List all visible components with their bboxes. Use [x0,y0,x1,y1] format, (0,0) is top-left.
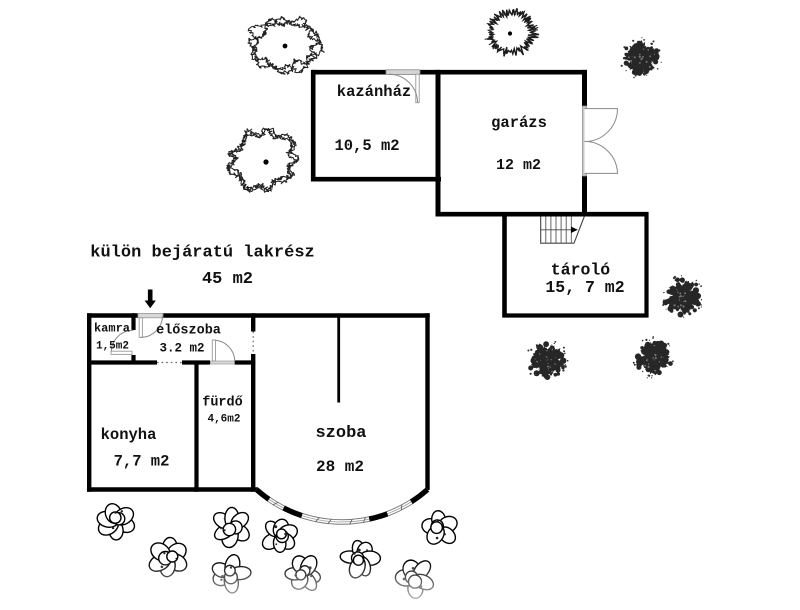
svg-text:3.2 m2: 3.2 m2 [159,341,204,355]
svg-text:konyha: konyha [101,426,157,444]
svg-text:külön bejáratú lakrész: külön bejáratú lakrész [90,243,314,262]
svg-text:kazánház: kazánház [337,83,411,101]
svg-text:15, 7 m2: 15, 7 m2 [545,278,624,297]
svg-text:12 m2: 12 m2 [496,157,541,174]
svg-text:7,7 m2: 7,7 m2 [114,453,170,471]
svg-text:garázs: garázs [491,114,547,132]
svg-text:kamra: kamra [94,322,130,336]
svg-text:fürdő: fürdő [202,396,243,411]
svg-text:28 m2: 28 m2 [316,458,364,476]
svg-text:szoba: szoba [315,424,366,443]
svg-text:1,5m2: 1,5m2 [96,340,129,352]
svg-text:45 m2: 45 m2 [202,270,253,289]
svg-text:4,6m2: 4,6m2 [207,413,240,425]
svg-text:10,5 m2: 10,5 m2 [334,137,399,155]
svg-text:előszoba: előszoba [156,324,221,339]
svg-text:tároló: tároló [551,261,611,280]
